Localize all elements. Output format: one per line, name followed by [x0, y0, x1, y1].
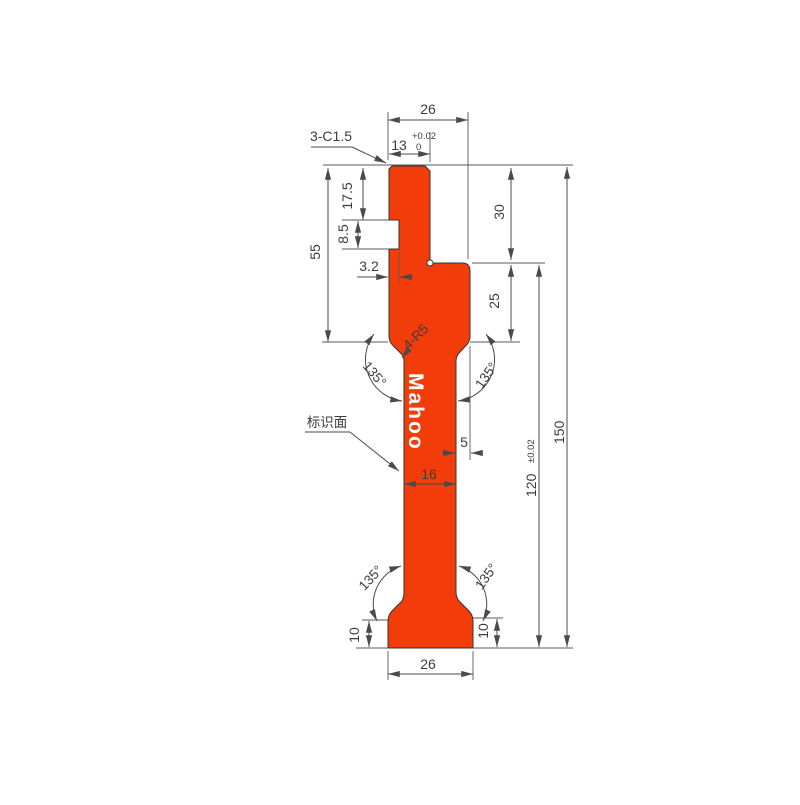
tool-profile — [388, 166, 473, 648]
dim-side-offset: 5 — [460, 434, 468, 450]
dim-tip-tol-lower: 0 — [416, 142, 421, 153]
angle-bottom-left: 135° — [356, 563, 386, 594]
marking-face-label: 标识面 — [307, 415, 348, 430]
dim-tip-tol-upper: +0.02 — [412, 131, 436, 142]
corner-relief-notch — [427, 260, 433, 266]
dim-notch-depth: 3.2 — [359, 258, 379, 274]
engineering-drawing: Mahoo — [0, 0, 800, 800]
dim-stem-width: 16 — [421, 466, 437, 482]
dim-upper-right-height: 30 — [491, 204, 507, 220]
angle-top-left: 135° — [360, 359, 389, 390]
dim-base-width: 26 — [420, 656, 436, 672]
watermark-text: Mahoo — [404, 373, 427, 451]
dim-lower-height: 120 — [523, 473, 539, 497]
dim-tip-width: 13 — [391, 137, 407, 153]
chamfer-note: 3-C1.5 — [310, 128, 352, 144]
dim-base-height-right: 10 — [475, 623, 491, 639]
angle-top-right: 135° — [472, 360, 500, 391]
dim-top-width: 26 — [420, 101, 436, 117]
dim-left-height: 55 — [307, 244, 323, 260]
drawing-canvas: Mahoo — [0, 0, 800, 800]
dim-lower-height-tol: ±0.02 — [526, 439, 537, 463]
dim-total-height: 150 — [551, 420, 567, 444]
dim-base-height-left: 10 — [346, 627, 362, 643]
dim-notch-height: 8.5 — [335, 224, 351, 244]
dim-mid-right-height: 25 — [486, 293, 502, 309]
dim-shank-length: 17.5 — [339, 182, 355, 209]
angle-bottom-right: 135° — [472, 561, 500, 592]
